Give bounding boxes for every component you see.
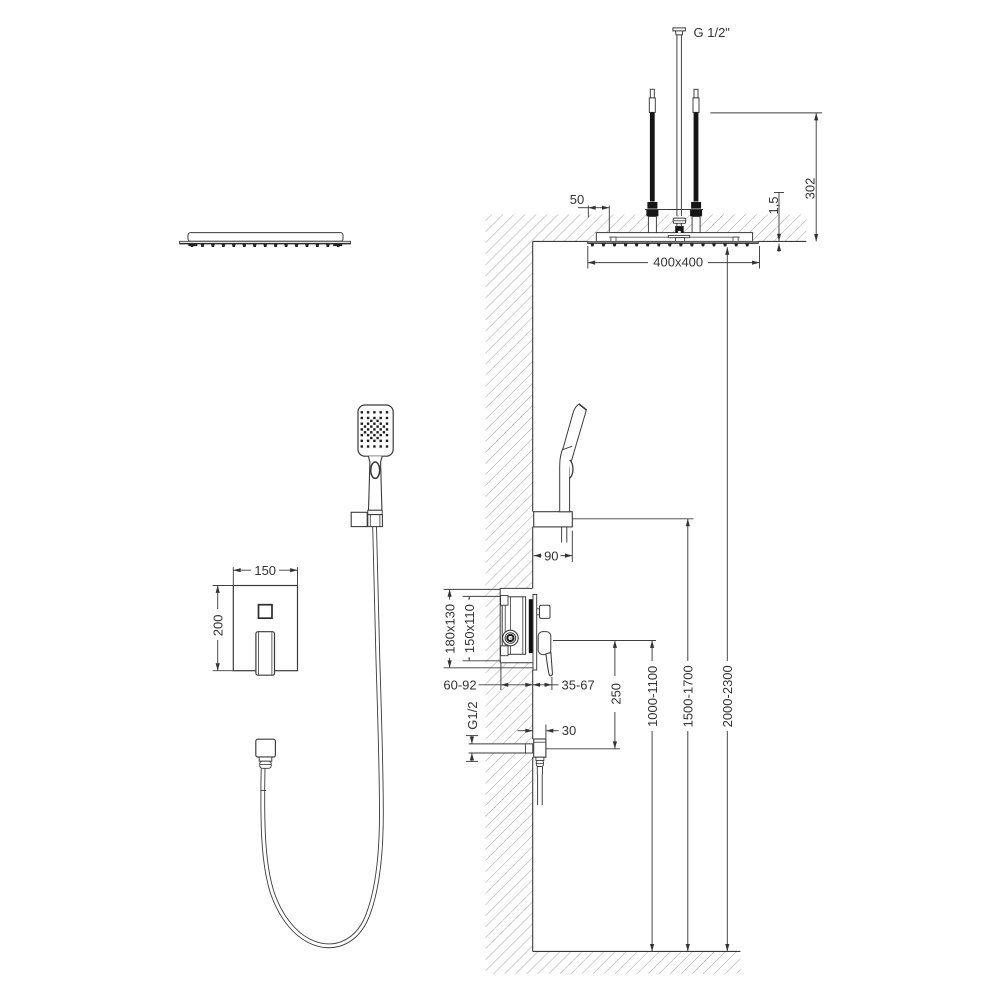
svg-text:30: 30 xyxy=(562,723,576,738)
svg-text:150: 150 xyxy=(254,563,276,578)
svg-text:1500-1700: 1500-1700 xyxy=(681,665,696,727)
svg-text:150x110: 150x110 xyxy=(462,604,477,653)
svg-text:180x130: 180x130 xyxy=(442,604,457,654)
svg-text:G 1/2": G 1/2" xyxy=(694,25,731,40)
svg-text:G1/2: G1/2 xyxy=(465,702,480,730)
svg-text:90: 90 xyxy=(544,548,558,563)
svg-text:50: 50 xyxy=(570,192,584,207)
svg-text:2000-2300: 2000-2300 xyxy=(720,665,735,727)
svg-text:1,5: 1,5 xyxy=(766,196,781,214)
svg-text:1000-1100: 1000-1100 xyxy=(645,666,660,727)
svg-text:400x400: 400x400 xyxy=(653,254,703,269)
svg-text:250: 250 xyxy=(608,683,623,705)
svg-text:35-67: 35-67 xyxy=(562,677,595,692)
svg-text:302: 302 xyxy=(802,178,817,200)
svg-text:200: 200 xyxy=(211,615,226,637)
svg-text:60-92: 60-92 xyxy=(443,678,476,693)
